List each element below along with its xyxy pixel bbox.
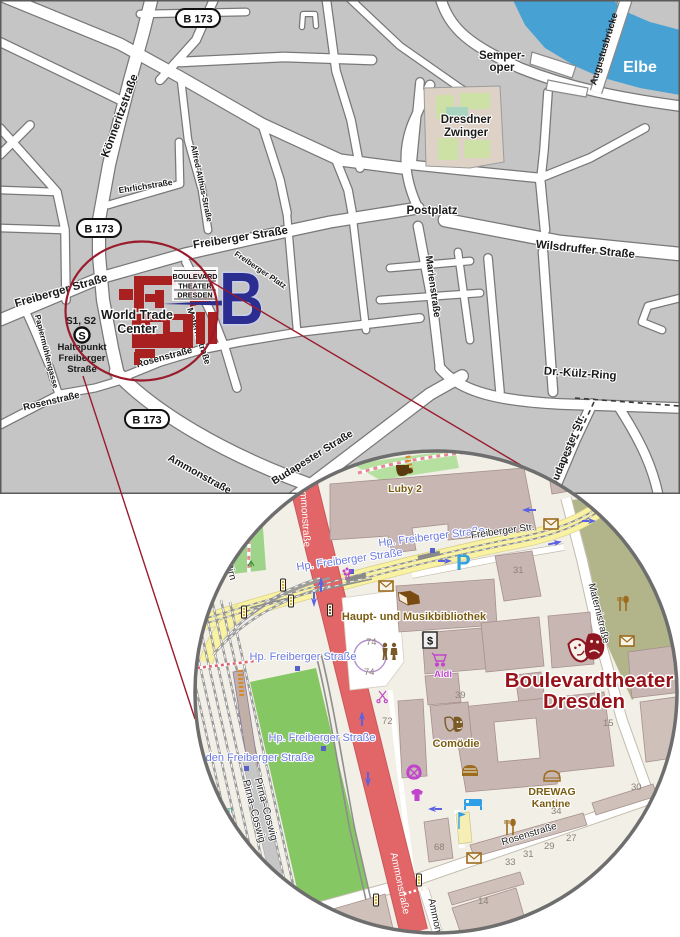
- svg-text:Haupt- und Musikbibliothek: Haupt- und Musikbibliothek: [342, 611, 487, 623]
- svg-text:Aldi: Aldi: [434, 669, 452, 680]
- svg-text:27: 27: [566, 833, 577, 844]
- svg-text:Center: Center: [117, 322, 157, 336]
- svg-text:B 173: B 173: [132, 415, 161, 427]
- svg-text:P: P: [456, 550, 471, 575]
- svg-text:31: 31: [513, 565, 524, 576]
- svg-text:World Trade: World Trade: [101, 308, 173, 322]
- svg-text:14: 14: [478, 896, 489, 907]
- svg-text:39: 39: [455, 690, 466, 701]
- svg-text:oper: oper: [490, 62, 515, 74]
- svg-text:74: 74: [364, 667, 375, 678]
- svg-text:Semper-: Semper-: [479, 50, 525, 62]
- svg-text:72: 72: [382, 716, 393, 727]
- svg-text:traße: traße: [269, 906, 295, 923]
- svg-text:Haltepunkt: Haltepunkt: [57, 342, 107, 353]
- svg-text:Dresdner: Dresdner: [441, 114, 492, 126]
- svg-text:74: 74: [366, 637, 377, 648]
- svg-text:Straße: Straße: [67, 364, 97, 375]
- svg-text:DREWAG: DREWAG: [528, 786, 575, 798]
- svg-text:31: 31: [523, 849, 534, 860]
- svg-text:S: S: [78, 331, 85, 343]
- svg-text:Boulevardtheater: Boulevardtheater: [505, 669, 674, 692]
- svg-text:Postplatz: Postplatz: [406, 205, 457, 217]
- svg-text:Dresden: Dresden: [543, 690, 625, 713]
- svg-text:S1, S2: S1, S2: [66, 316, 96, 327]
- svg-text:Luby 2: Luby 2: [388, 483, 422, 495]
- svg-text:68: 68: [434, 842, 445, 853]
- svg-text:B 173: B 173: [183, 14, 212, 26]
- svg-text:Elbe: Elbe: [623, 59, 657, 76]
- svg-text:sden Freiberger Straße: sden Freiberger Straße: [200, 752, 314, 764]
- svg-text:30: 30: [631, 782, 642, 793]
- svg-text:Zwinger: Zwinger: [444, 127, 489, 139]
- svg-text:15: 15: [603, 718, 614, 729]
- svg-text:THEATER: THEATER: [178, 282, 212, 291]
- svg-text:34: 34: [551, 806, 562, 817]
- svg-text:Hp. Freiberger Straße: Hp. Freiberger Straße: [269, 732, 376, 744]
- svg-text:29: 29: [544, 841, 555, 852]
- svg-text:$: $: [427, 636, 433, 648]
- svg-text:33: 33: [505, 857, 516, 868]
- svg-text:DRESDEN: DRESDEN: [177, 291, 212, 300]
- svg-text:B 173: B 173: [84, 224, 113, 236]
- svg-text:Comödie: Comödie: [432, 738, 479, 750]
- svg-text:Hp. Freiberger Straße: Hp. Freiberger Straße: [250, 651, 357, 663]
